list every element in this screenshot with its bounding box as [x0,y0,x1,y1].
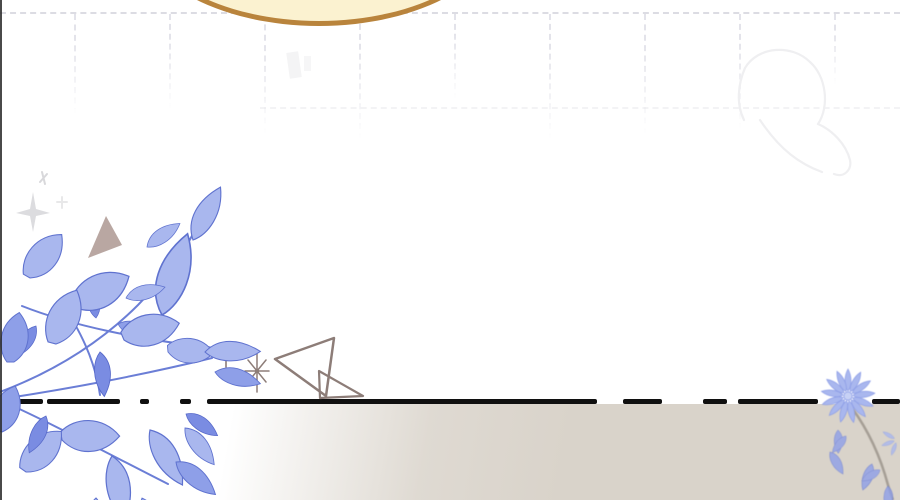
leaf [26,413,51,455]
leaf [57,406,121,467]
leaf [70,267,129,316]
branch-stem [22,306,215,348]
branch-stem [0,234,193,392]
sparkle-icon [40,172,47,184]
petal [821,388,844,398]
beige-bottom-panel [140,404,900,500]
leaf [116,319,160,342]
grid-vline [644,14,646,134]
divider-segment [207,399,597,404]
grid-vline [169,14,171,109]
sparkle-icon [57,197,67,208]
sparkle-icon [16,192,50,232]
grid-vline [264,14,266,134]
leaf [89,351,117,398]
divider-segment [180,399,191,404]
petal [845,369,851,391]
faint-cloud-outline [745,50,825,124]
petal [834,370,848,393]
outline-triangle-large [275,338,334,396]
grid-vline [739,14,741,129]
divider-segment [703,399,727,404]
faint-smudge [304,56,311,71]
leaf [124,277,167,308]
branch-stem [8,358,212,398]
grid-vline [454,14,456,99]
starburst-center [255,369,259,373]
mauve-triangle [88,216,122,258]
leaf [186,182,225,245]
grid-hline [0,12,900,14]
grid-vline [359,14,361,139]
faint-cloud-outline [818,124,850,175]
leaf [96,453,141,500]
leaf [152,230,195,318]
comic-panel [0,0,900,500]
branch-stem [60,300,100,395]
petal [850,378,872,395]
leaf [144,215,183,254]
petal [848,371,864,393]
plus-sparkle-icon [216,346,236,367]
petal [825,377,846,395]
grid-hline [260,107,900,109]
petal [853,390,876,398]
faint-smudge [286,51,302,78]
outline-triangle-small [319,371,363,398]
brown-sparkles [216,346,269,392]
leaf [32,289,95,348]
leaf [214,366,262,387]
grid-vline [834,14,836,84]
leaf [11,322,40,362]
divider-segment [140,399,149,404]
grid-vline [549,14,551,139]
leaf [204,336,261,366]
starburst-sparkle-icon [245,350,269,392]
leaf [118,303,180,358]
leaf [83,283,104,319]
divider-segment [623,399,662,404]
leaf [164,326,215,375]
leaf [0,311,42,366]
divider-segment [47,399,120,404]
leaf [16,233,71,280]
divider-segment [738,399,818,404]
flower-center [844,392,852,400]
outlined-triangles [275,338,363,398]
leaf [0,385,33,435]
leaf [15,430,68,474]
gray-sparkles [16,172,67,232]
grid-vline [74,14,76,114]
left-edge-strip [0,0,2,500]
divider-segment [18,399,43,404]
faint-cloud-outline [760,120,822,172]
divider-segment [872,399,900,404]
